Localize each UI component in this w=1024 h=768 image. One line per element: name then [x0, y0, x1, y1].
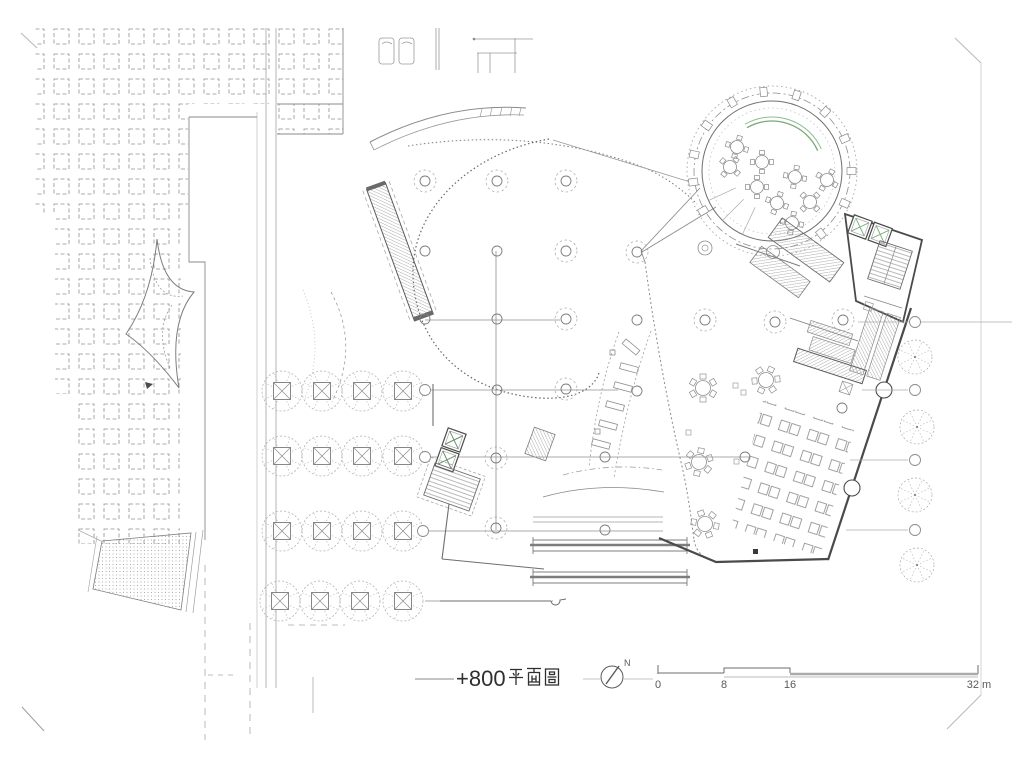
road	[257, 28, 276, 688]
curved-canopy	[370, 107, 526, 150]
construction-lines	[205, 565, 345, 740]
column-grid-lines	[425, 251, 750, 601]
scale-tick-32: 32 m	[967, 679, 991, 691]
tree-grid	[260, 371, 423, 621]
plan-title: +800	[415, 666, 559, 691]
scale-tick-16: 16	[784, 679, 796, 691]
benches	[530, 517, 690, 586]
path-arcs	[543, 467, 664, 497]
plaza-lower-edge	[440, 559, 566, 605]
green-curved-wall	[747, 121, 818, 151]
floor-plan-sheet: +800 N 0 8 16 32 m	[0, 0, 1024, 768]
north-label: N	[624, 658, 631, 668]
elevator-core-right	[845, 214, 922, 322]
right-leaders-trees	[846, 317, 1012, 583]
escalator-ramp	[362, 179, 437, 322]
floor-plan-drawing: +800 N 0 8 16 32 m	[0, 0, 1024, 768]
restaurant-building	[659, 214, 922, 562]
scale-bar: 0 8 16 32 m	[655, 665, 991, 691]
plan-title-cjk	[509, 669, 559, 686]
small-stair	[525, 427, 555, 461]
plan-title-numeric: +800	[456, 666, 506, 691]
table-rows	[731, 400, 854, 556]
scale-tick-0: 0	[655, 679, 661, 691]
north-arrow: N	[583, 658, 653, 688]
corridor-benches	[589, 331, 651, 478]
c-shaped-wall	[413, 139, 599, 398]
circular-dining-pavilion	[687, 86, 857, 298]
paved-plaza-grid	[35, 28, 343, 544]
pavilion-stairs	[750, 218, 844, 298]
top-structures	[379, 28, 533, 73]
scale-tick-8: 8	[721, 679, 727, 691]
